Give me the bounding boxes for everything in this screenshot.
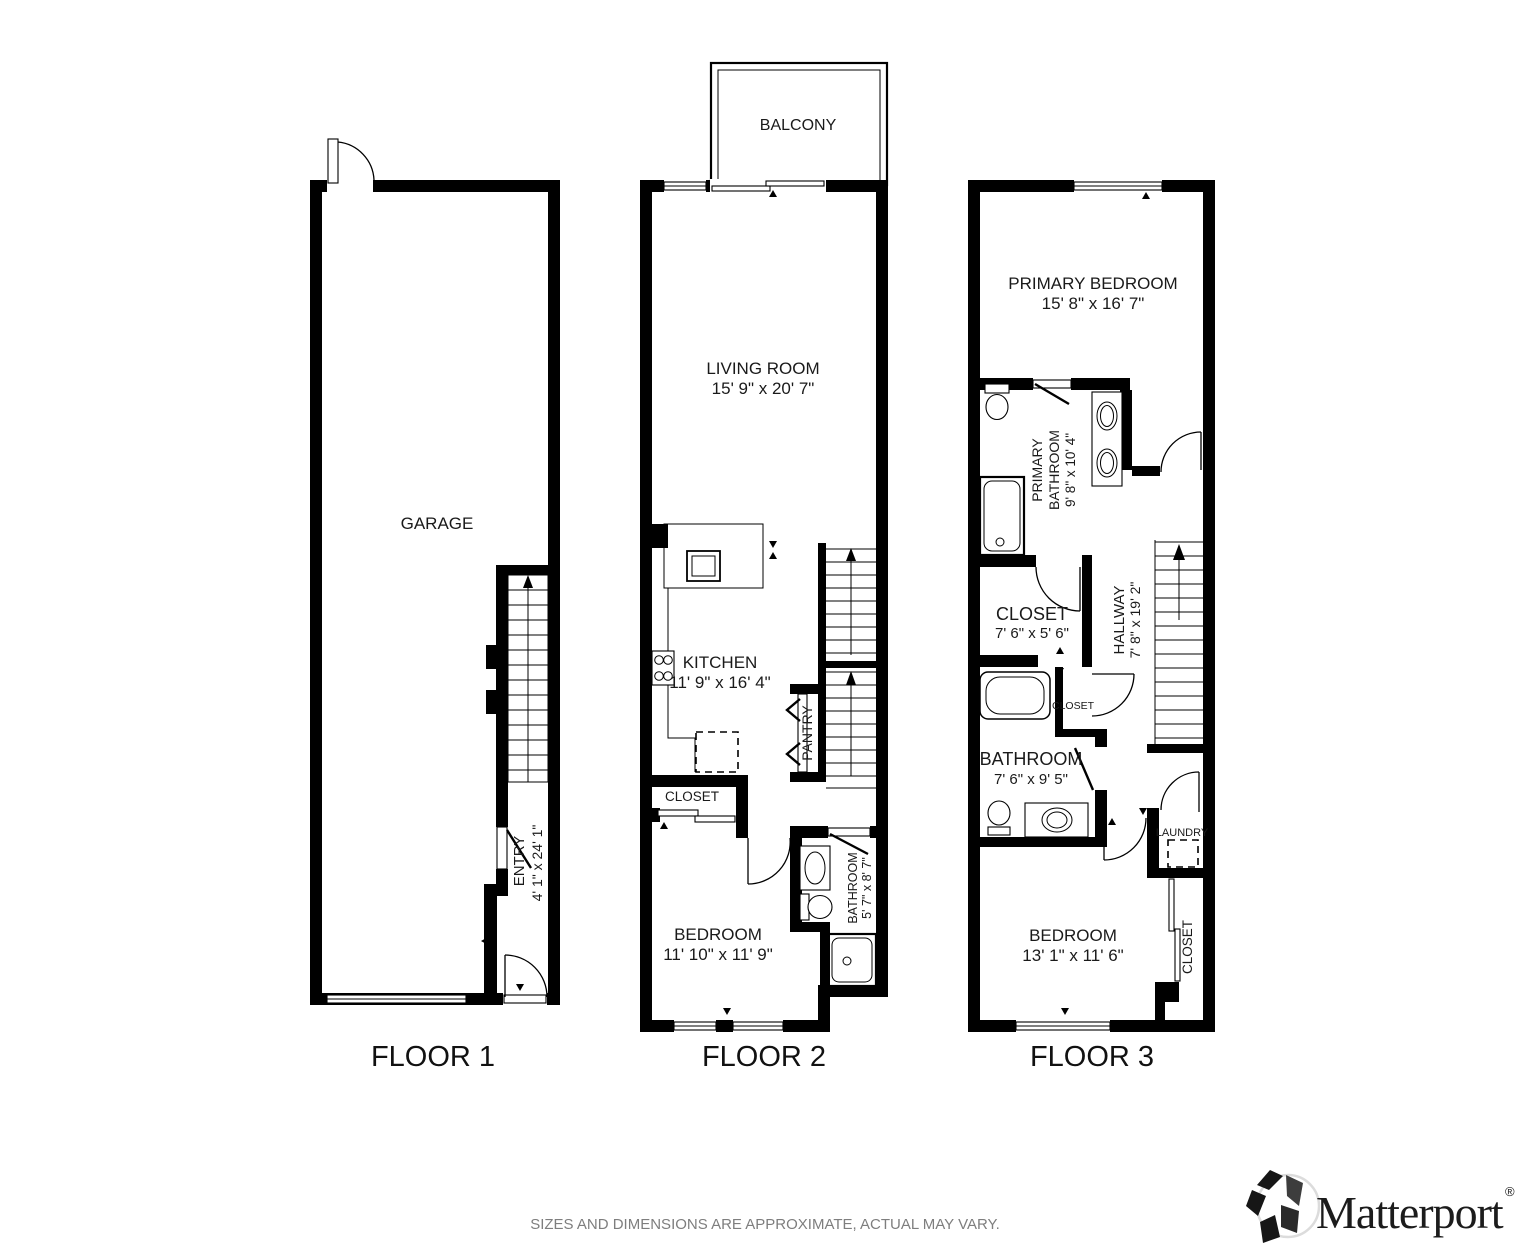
bathroom-door-icon [828, 826, 870, 854]
garage-door-icon [321, 993, 472, 1005]
primary-bedroom-door-icon [1033, 378, 1071, 404]
front-door-icon [503, 955, 547, 1005]
bathroom-dims: 5' 7" x 8' 7" [860, 857, 874, 919]
closet-passage-icon [1038, 647, 1082, 675]
registered-trademark-icon: ® [1505, 1184, 1515, 1199]
double-vanity-icon [1092, 392, 1122, 486]
hallway-door-icon [1161, 432, 1201, 472]
washer-dryer-icon [1168, 840, 1198, 867]
living-room-dims: 15' 9" x 20' 7" [712, 379, 815, 398]
kitchen-dims: 11' 9" x 16' 4" [669, 673, 770, 692]
closet-sliding-door-icon [658, 810, 735, 829]
bedroom-label: BEDROOM [1029, 926, 1117, 945]
matterport-wordmark: Matterport [1316, 1187, 1504, 1238]
toilet-icon [985, 384, 1009, 420]
primary-bathroom-label-line2: BATHROOM [1046, 430, 1062, 510]
disclaimer-text: SIZES AND DIMENSIONS ARE APPROXIMATE, AC… [530, 1216, 1000, 1233]
closet-sliding-door-icon [1169, 879, 1180, 981]
bathtub-icon [980, 672, 1050, 719]
floorplan-canvas: GARAGE ENTRY 4' 1" x 24' 1" BALCONY [0, 0, 1530, 1253]
living-room-label: LIVING ROOM [706, 359, 819, 378]
floor2-interior-walls [646, 524, 876, 985]
floor3-plan: PRIMARY BEDROOM 15' 8" x 16' 7" PRIMARY … [968, 179, 1215, 1033]
window-icon [733, 1019, 783, 1033]
floor2-caption: FLOOR 2 [702, 1041, 826, 1073]
primary-bedroom-dims: 15' 8" x 16' 7" [1042, 294, 1145, 313]
floor1-plan: GARAGE ENTRY 4' 1" x 24' 1" [310, 139, 560, 1005]
window-icon [1074, 179, 1162, 193]
primary-bathroom-dims: 9' 8" x 10' 4" [1063, 433, 1078, 507]
bathroom-dims: 7' 6" x 9' 5" [994, 771, 1068, 788]
shower-icon [980, 477, 1024, 555]
entry-label: ENTRY [511, 836, 528, 887]
toilet-icon [988, 801, 1010, 835]
closet-dims: 7' 6" x 5' 6" [995, 625, 1069, 642]
primary-bedroom-label: PRIMARY BEDROOM [1008, 274, 1177, 293]
matterport-logo-mark [1246, 1170, 1303, 1243]
window-icon [664, 179, 706, 193]
closet-label: CLOSET [665, 789, 719, 804]
hallway-dims: 7' 8" x 19' 2" [1127, 582, 1143, 659]
bathroom-label: BATHROOM [980, 749, 1083, 769]
floor1-interior-walls [484, 565, 548, 993]
bedroom-dims: 13' 1" x 11' 6" [1022, 946, 1123, 965]
hallway-label: HALLWAY [1111, 586, 1128, 655]
window-icon [1016, 1019, 1110, 1033]
bedroom-label: BEDROOM [674, 925, 762, 944]
bedroom-closet-label: CLOSET [1180, 920, 1195, 974]
floor2-plan: BALCONY [640, 63, 888, 1033]
primary-bathroom-label-line1: PRIMARY [1029, 438, 1045, 502]
shower-icon [828, 934, 876, 986]
window-icon [674, 1019, 716, 1033]
hall-closet-door-icon [1092, 674, 1134, 716]
floor-captions: FLOOR 1 FLOOR 2 FLOOR 3 [371, 1041, 1154, 1073]
sink-icon [800, 846, 830, 890]
kitchen-label: KITCHEN [683, 653, 758, 672]
floorplan-page: GARAGE ENTRY 4' 1" x 24' 1" BALCONY [0, 0, 1530, 1253]
floor3-caption: FLOOR 3 [1030, 1041, 1154, 1073]
matterport-logo: Matterport ® [1246, 1170, 1515, 1243]
stairs-icon [508, 575, 548, 782]
laundry-door-icon [1161, 772, 1199, 812]
floor1-caption: FLOOR 1 [371, 1041, 495, 1073]
toilet-icon [800, 894, 832, 920]
sink-icon [1025, 803, 1088, 837]
kitchen-sink-icon [687, 551, 720, 581]
garage-side-door-icon [327, 139, 374, 193]
entry-dims: 4' 1" x 24' 1" [529, 825, 545, 902]
sliding-door-icon [710, 179, 826, 197]
garage-label: GARAGE [401, 514, 474, 533]
closet-door-icon [1036, 555, 1082, 611]
bathroom-label: BATHROOM [846, 852, 860, 923]
laundry-label: LAUNDRY [1156, 827, 1209, 839]
hall-closet-label: CLOSET [1052, 700, 1095, 712]
dishwasher-icon [696, 732, 738, 772]
bedroom-door-icon [748, 838, 790, 884]
bedroom-dims: 11' 10" x 11' 9" [663, 945, 773, 964]
stairs-icon [1155, 540, 1203, 744]
balcony-label: BALCONY [760, 117, 837, 134]
pantry-label: PANTRY [799, 705, 815, 761]
closet-label: CLOSET [996, 604, 1068, 624]
